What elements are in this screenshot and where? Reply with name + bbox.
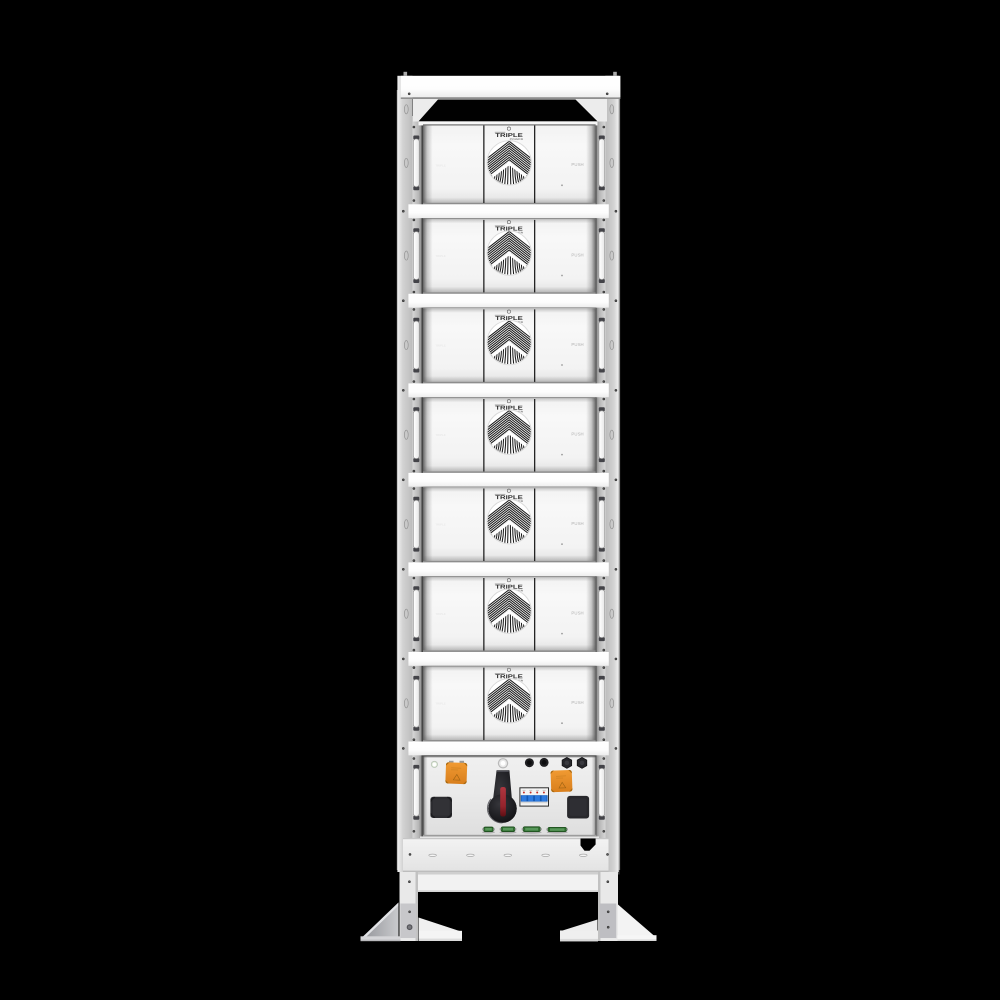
svg-text:PUSH: PUSH [571,162,583,167]
svg-text:TRIPLE: TRIPLE [435,164,446,168]
